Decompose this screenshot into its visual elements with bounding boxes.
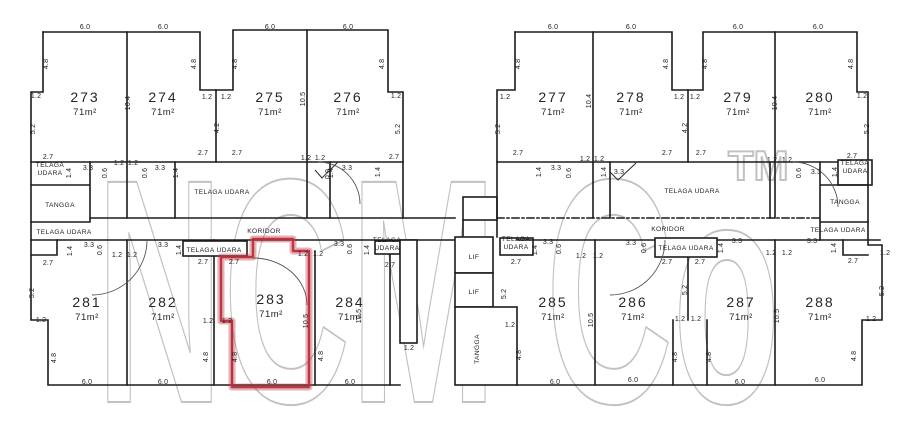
dim-label: 5.2 xyxy=(395,124,402,134)
dim-label: 2.7 xyxy=(848,258,858,265)
unit-area: 71m² xyxy=(726,107,750,118)
unit-label-287[interactable]: 28771m² xyxy=(726,294,755,323)
unit-area: 71m² xyxy=(336,107,360,118)
dim-label: 4.8 xyxy=(191,59,198,69)
unit-number: 284 xyxy=(335,294,364,310)
dim-label: 3.3 xyxy=(551,165,561,172)
dim-label: 1.4 xyxy=(832,167,839,177)
dim-label: 4.8 xyxy=(379,59,386,69)
dim-label: 4.8 xyxy=(51,353,58,363)
unit-label-277[interactable]: 27771m² xyxy=(538,89,567,118)
unit-area: 71m² xyxy=(258,107,282,118)
dim-label: 5.2 xyxy=(495,124,502,134)
dim-label: 3.3 xyxy=(807,238,817,245)
dim-label: 10.5 xyxy=(356,309,363,323)
dim-label: 0.6 xyxy=(796,168,803,178)
dim-label: 1.2 xyxy=(114,160,124,167)
dim-label: 5.2 xyxy=(682,285,689,295)
unit-label-282[interactable]: 28271m² xyxy=(148,294,177,323)
dim-label: 6.0 xyxy=(550,379,560,386)
room-label-telaga-udara: UDARA xyxy=(503,244,528,251)
unit-number: 287 xyxy=(726,294,755,310)
unit-label-273[interactable]: 27371m² xyxy=(70,89,99,118)
dim-label: 1.2 xyxy=(576,253,586,260)
dim-label: 2.7 xyxy=(511,259,521,266)
dim-label: 4.8 xyxy=(516,350,523,360)
dim-label: 4.8 xyxy=(702,59,709,69)
dim-label: 1.4 xyxy=(831,243,838,253)
dim-label: 1.2 xyxy=(128,160,138,167)
watermark-tm-mark: TM xyxy=(728,142,789,189)
dim-label: 4.8 xyxy=(663,59,670,69)
unit-number: 283 xyxy=(256,291,285,307)
dim-label: 1.2 xyxy=(674,94,684,101)
unit-area: 71m² xyxy=(619,107,643,118)
room-label-telaga-udara: TELAGA xyxy=(36,162,65,169)
dim-label: 1.4 xyxy=(67,246,74,256)
dim-label: 1.2 xyxy=(313,251,323,258)
unit-number: 286 xyxy=(618,294,647,310)
dim-label: 1.2 xyxy=(782,250,792,257)
dim-label: 1.2 xyxy=(36,317,46,324)
room-label-telaga-udara: TELAGA UDARA xyxy=(36,229,92,236)
dim-label: 6.0 xyxy=(813,24,823,31)
dim-label: 3.3 xyxy=(84,242,94,249)
dim-label: 3.3 xyxy=(83,165,93,172)
unit-label-280[interactable]: 28071m² xyxy=(805,89,834,118)
dim-label: 4.8 xyxy=(851,351,858,361)
dim-label: 2.7 xyxy=(662,150,672,157)
dim-label: 5.2 xyxy=(501,289,508,299)
dim-label: 6.0 xyxy=(815,377,825,384)
dim-label: 1.4 xyxy=(536,167,543,177)
dim-label: 10.5 xyxy=(588,313,595,327)
unit-area: 71m² xyxy=(151,312,175,323)
room-label-telaga-udara: UDARA xyxy=(842,168,867,175)
dim-label: 4.2 xyxy=(682,123,689,133)
room-label-telaga-udara: TELAGA xyxy=(502,236,531,243)
dim-label: 1.4 xyxy=(364,245,371,255)
dim-label: 1.4 xyxy=(718,243,725,253)
dim-label: 4.8 xyxy=(515,59,522,69)
dim-label: 2.7 xyxy=(695,259,705,266)
floor-plan-svg: NCM CoTM xyxy=(0,0,898,434)
dim-label: 1.2 xyxy=(221,94,231,101)
dim-label: 6.0 xyxy=(158,24,168,31)
dim-label: 1.2 xyxy=(301,155,311,162)
dim-label: 1.2 xyxy=(675,316,685,323)
room-label-koridor: KORIDOR xyxy=(651,226,685,233)
dim-label: 6.0 xyxy=(626,24,636,31)
dim-label: 3.3 xyxy=(158,242,168,249)
dim-label: 1.2 xyxy=(203,318,213,325)
unit-number: 285 xyxy=(538,294,567,310)
dim-label: 4.8 xyxy=(232,352,239,362)
dim-label: 6.0 xyxy=(345,379,355,386)
dim-label: 4.8 xyxy=(848,59,855,69)
dim-label: 1.2 xyxy=(594,156,604,163)
dim-label: 1.2 xyxy=(404,345,414,352)
unit-area: 71m² xyxy=(151,107,175,118)
unit-label-288[interactable]: 28871m² xyxy=(805,294,834,323)
dim-label: 1.2 xyxy=(298,251,308,258)
dim-label: 1.4 xyxy=(176,245,183,255)
room-label-telaga-udara: TELAGA xyxy=(373,237,402,244)
dim-label: 1.2 xyxy=(500,94,510,101)
dim-label: 0.6 xyxy=(142,168,149,178)
dim-label: 5.2 xyxy=(30,124,37,134)
dim-label: 1.2 xyxy=(866,316,876,323)
dim-label: 3.3 xyxy=(155,165,165,172)
dim-label: 1.4 xyxy=(173,168,180,178)
dim-label: 10.4 xyxy=(586,94,593,108)
dim-label: 2.7 xyxy=(43,260,53,267)
unit-area: 71m² xyxy=(808,107,832,118)
unit-number: 278 xyxy=(616,89,645,105)
dim-label: 1.2 xyxy=(202,94,212,101)
unit-area: 71m² xyxy=(259,309,283,320)
dim-label: 4.8 xyxy=(706,352,713,362)
dim-label: 6.0 xyxy=(628,377,638,384)
unit-number: 275 xyxy=(255,89,284,105)
unit-label-286[interactable]: 28671m² xyxy=(618,294,647,323)
dim-label: 3.3 xyxy=(732,238,742,245)
dim-label: 1.2 xyxy=(580,156,590,163)
dim-label: 2.7 xyxy=(513,150,523,157)
dim-label: 1.4 xyxy=(375,167,382,177)
dim-label: 1.2 xyxy=(857,93,867,100)
room-label-lif: LIF xyxy=(469,289,480,296)
unit-label-278[interactable]: 27871m² xyxy=(616,89,645,118)
dim-label: 0.6 xyxy=(102,168,109,178)
room-label-tangga: TANGGA xyxy=(474,334,481,364)
room-label-telaga-udara: TELAGA UDARA xyxy=(194,189,250,196)
unit-area: 71m² xyxy=(73,107,97,118)
room-label-telaga-udara: UDARA xyxy=(374,245,399,252)
unit-area: 71m² xyxy=(729,312,753,323)
unit-area: 71m² xyxy=(75,312,99,323)
dim-label: 2.7 xyxy=(43,154,53,161)
dim-label: 1.2 xyxy=(315,155,325,162)
dim-label: 1.2 xyxy=(127,252,137,259)
duct-box xyxy=(400,240,417,343)
dim-label: 4.8 xyxy=(43,59,50,69)
dim-label: 3.3 xyxy=(626,240,636,247)
dim-label: 10.4 xyxy=(125,96,132,110)
dim-label: 3.3 xyxy=(342,165,352,172)
unit-number: 282 xyxy=(148,294,177,310)
unit-label-279[interactable]: 27971m² xyxy=(723,89,752,118)
dim-label: 6.0 xyxy=(733,24,743,31)
dim-label: 0.6 xyxy=(97,245,104,255)
dim-label: 5.2 xyxy=(879,286,886,296)
dim-label: 10.5 xyxy=(774,309,781,323)
dim-label: 0.6 xyxy=(556,244,563,254)
dim-label: 10.5 xyxy=(300,92,307,106)
floor-plan-screenshot: NCM CoTM xyxy=(0,0,898,434)
unit-area: 71m² xyxy=(541,107,565,118)
unit-label-281[interactable]: 28171m² xyxy=(72,294,101,323)
dim-label: 2.7 xyxy=(847,153,857,160)
unit-area: 71m² xyxy=(621,312,645,323)
unit-number: 274 xyxy=(148,89,177,105)
dim-label: 0.9 xyxy=(325,169,332,179)
dim-label: 2.7 xyxy=(198,150,208,157)
dim-label: 1.2 xyxy=(222,318,232,325)
dim-label: 1.4 xyxy=(601,167,608,177)
dim-label: 1.4 xyxy=(532,245,539,255)
dim-label: 3.3 xyxy=(543,239,553,246)
dim-label: 6.0 xyxy=(158,379,168,386)
dim-label: 2.7 xyxy=(662,259,672,266)
unit-area: 71m² xyxy=(541,312,565,323)
dim-label: 1.2 xyxy=(782,157,792,164)
stair-box xyxy=(455,307,517,385)
room-label-koridor: KORIDOR xyxy=(247,228,281,235)
dim-label: 1.2 xyxy=(505,322,515,329)
dim-label: 4.8 xyxy=(318,351,325,361)
dim-label: 2.7 xyxy=(232,150,242,157)
dim-label: 6.0 xyxy=(265,24,275,31)
dim-label: 4.8 xyxy=(672,352,679,362)
unit-label-285[interactable]: 28571m² xyxy=(538,294,567,323)
unit-label-276[interactable]: 27671m² xyxy=(333,89,362,118)
dim-label: 6.0 xyxy=(82,379,92,386)
dim-label: 2.7 xyxy=(198,259,208,266)
dim-label: 1.4 xyxy=(66,168,73,178)
unit-label-274[interactable]: 27471m² xyxy=(148,89,177,118)
dim-label: 4.8 xyxy=(232,59,239,69)
unit-label-283[interactable]: 28371m² xyxy=(256,291,285,320)
dim-label: 0.6 xyxy=(347,244,354,254)
dim-label: 4.8 xyxy=(203,352,210,362)
room-label-tangga: TANGGA xyxy=(45,202,75,209)
dim-label: 2.7 xyxy=(696,150,706,157)
unit-number: 288 xyxy=(805,294,834,310)
unit-number: 276 xyxy=(333,89,362,105)
room-label-telaga-udara: TELAGA UDARA xyxy=(658,245,714,252)
dim-label: 5.2 xyxy=(864,124,871,134)
unit-number: 277 xyxy=(538,89,567,105)
room-label-telaga-udara: TELAGA UDARA xyxy=(186,247,242,254)
dim-label: 1.2 xyxy=(31,93,41,100)
dim-label: 1.2 xyxy=(112,252,122,259)
dim-label: 1.2 xyxy=(391,93,401,100)
dim-label: 1.2 xyxy=(690,94,700,101)
dim-label: 0.6 xyxy=(641,243,648,253)
room-label-telaga-udara: TELAGA UDARA xyxy=(810,227,866,234)
dim-label: 10.5 xyxy=(303,314,310,328)
dim-label: 5.2 xyxy=(29,288,36,298)
unit-label-275[interactable]: 27571m² xyxy=(255,89,284,118)
dim-label: 10.4 xyxy=(772,96,779,110)
dim-label: 6.0 xyxy=(267,379,277,386)
dim-label: 1.2 xyxy=(691,316,701,323)
room-label-tangga: TANGGA xyxy=(830,199,860,206)
dim-label: 3.3 xyxy=(334,241,344,248)
unit-number: 279 xyxy=(723,89,752,105)
dim-label: 0.6 xyxy=(566,168,573,178)
dim-label: 1.2 xyxy=(880,250,890,257)
wall xyxy=(843,240,868,255)
dim-label: 2.7 xyxy=(385,262,395,269)
unit-number: 280 xyxy=(805,89,834,105)
dim-label: 2.7 xyxy=(229,259,239,266)
unit-area: 71m² xyxy=(808,312,832,323)
dim-label: 3.3 xyxy=(811,169,821,176)
unit-number: 281 xyxy=(72,294,101,310)
core-box xyxy=(463,197,497,220)
dim-label: 6.0 xyxy=(548,24,558,31)
dim-label: 6.0 xyxy=(343,24,353,31)
room-label-telaga-udara: TELAGA UDARA xyxy=(664,188,720,195)
room-label-telaga-udara: UDARA xyxy=(37,170,62,177)
dim-label: 1.2 xyxy=(593,253,603,260)
dim-label: 1.2 xyxy=(767,157,777,164)
dim-label: 6.0 xyxy=(80,24,90,31)
unit-number: 273 xyxy=(70,89,99,105)
dim-label: 6.0 xyxy=(735,379,745,386)
dim-label: 4.2 xyxy=(214,123,221,133)
room-label-telaga-udara: TELAGA xyxy=(841,160,870,167)
dim-label: 2.7 xyxy=(389,154,399,161)
room-label-lif: LIF xyxy=(469,254,480,261)
dim-label: 3.3 xyxy=(614,169,624,176)
dim-label: 1.2 xyxy=(766,250,776,257)
